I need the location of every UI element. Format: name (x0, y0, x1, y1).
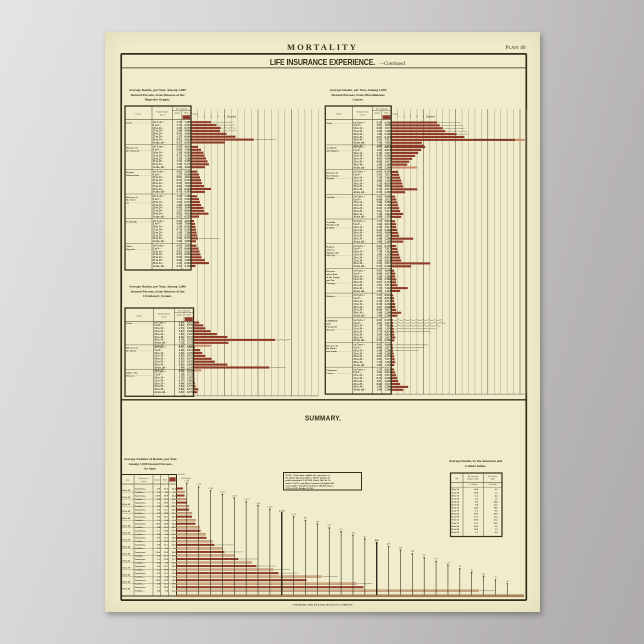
svg-text:60 to 64: 60 to 64 (451, 513, 459, 515)
svg-text:1,193: 1,193 (384, 363, 391, 366)
svg-text:621: 621 (339, 528, 342, 530)
svg-text:25 to 29: 25 to 29 (451, 492, 459, 494)
svg-text:19.9: 19.9 (163, 523, 168, 525)
svg-text:American...: American... (134, 508, 146, 511)
svg-text:9.9: 9.9 (157, 488, 161, 490)
svg-text:5,286: 5,286 (384, 166, 391, 169)
svg-text:5: 5 (223, 115, 225, 118)
svg-text:5.5: 5.5 (494, 528, 498, 530)
svg-text:11.1: 11.1 (164, 509, 169, 511)
svg-text:At ins. all –: At ins. all – (353, 388, 366, 391)
svg-text:70 to 74: 70 to 74 (122, 559, 131, 562)
svg-text:6,286: 6,286 (384, 265, 391, 268)
svg-text:8,379: 8,379 (186, 391, 193, 394)
svg-text:8.19: 8.19 (376, 191, 381, 194)
svg-text:0.0: 0.0 (157, 565, 161, 567)
svg-text:24.4: 24.4 (474, 507, 479, 509)
svg-text:1762 to 1833. Deaths, 25,161.: 1762 to 1833. Deaths, 25,161. (285, 487, 314, 489)
svg-text:1.1: 1.1 (494, 498, 497, 500)
svg-text:2: 2 (203, 115, 205, 118)
svg-text:1,193: 1,193 (384, 289, 391, 292)
svg-text:17.7: 17.7 (171, 530, 176, 532)
svg-text:At ins. all –: At ins. all – (152, 215, 165, 218)
svg-text:Annual: Annual (174, 111, 180, 114)
svg-text:6,555: 6,555 (184, 141, 191, 144)
svg-text:20 to 24: 20 to 24 (451, 489, 459, 491)
svg-text:4: 4 (416, 115, 418, 118)
svg-text:0.73: 0.73 (176, 264, 181, 267)
svg-text:0.0: 0.0 (157, 509, 161, 511)
svg-text:13.3: 13.3 (171, 544, 176, 546)
svg-text:Natural Years: Natural Years (356, 111, 368, 113)
svg-text:10.0: 10.0 (155, 551, 160, 553)
svg-text:19.9: 19.9 (474, 528, 479, 530)
svg-text:(Deaths): (Deaths) (425, 115, 434, 118)
svg-text:233: 233 (422, 554, 426, 556)
svg-text:lived: lived (161, 316, 166, 318)
svg-text:1.1: 1.1 (475, 531, 478, 533)
svg-text:13.3: 13.3 (171, 488, 176, 490)
svg-text:Average Deaths, by the America: Average Deaths, by the American and (448, 459, 501, 463)
svg-text:1.1: 1.1 (475, 510, 478, 512)
svg-text:30 to 34: 30 to 34 (451, 495, 459, 497)
svg-text:30: 30 (494, 577, 497, 579)
svg-text:40 to 44: 40 to 44 (451, 501, 459, 503)
svg-text:1,193: 1,193 (384, 215, 391, 218)
svg-text:and Joints: and Joints (326, 350, 337, 353)
svg-text:At ins. all –: At ins. all – (353, 314, 366, 317)
svg-text:Ratio: Ratio (384, 112, 388, 114)
svg-text:At ins. all –: At ins. all – (152, 166, 165, 169)
svg-text:891: 891 (303, 517, 306, 519)
svg-text:26.6: 26.6 (474, 489, 479, 491)
svg-text:8.37: 8.37 (176, 215, 181, 218)
svg-text:16.6: 16.6 (171, 537, 176, 539)
svg-text:400: 400 (386, 543, 390, 545)
svg-text:19.9: 19.9 (163, 551, 168, 553)
svg-text:Average Deaths, per Year, Amon: Average Deaths, per Year, Among 1,000 (129, 284, 186, 288)
svg-text:1: 1 (396, 115, 398, 118)
svg-text:22.2: 22.2 (493, 519, 497, 521)
svg-text:19.9: 19.9 (474, 513, 479, 515)
svg-text:456: 456 (374, 539, 379, 542)
svg-text:45 to 49: 45 to 49 (451, 504, 459, 506)
svg-text:26.6: 26.6 (474, 525, 479, 527)
svg-text:1.46: 1.46 (376, 314, 381, 317)
svg-text:ces); number of policies inclu: ces); number of policies included, 160,4… (285, 484, 333, 487)
svg-text:At ins. all –: At ins. all – (353, 191, 366, 194)
svg-text:13.3: 13.3 (171, 572, 176, 574)
svg-text:9.9: 9.9 (157, 516, 161, 518)
svg-text:Experience: Experience (138, 477, 147, 479)
svg-text:3.3: 3.3 (475, 498, 479, 500)
svg-text:American...: American... (134, 564, 146, 567)
svg-text:10.0: 10.0 (155, 579, 160, 581)
svg-text:Peritonitis: Peritonitis (126, 220, 137, 223)
svg-text:3: 3 (409, 115, 411, 118)
svg-text:19.9: 19.9 (163, 579, 168, 581)
svg-text:8.19: 8.19 (376, 339, 381, 342)
svg-text:American...: American... (134, 487, 146, 490)
svg-text:At ins. all –: At ins. all – (353, 215, 366, 218)
svg-text:28.8: 28.8 (493, 501, 498, 503)
svg-text:Average Number of Deaths, per: Average Number of Deaths, per Year, (123, 457, 177, 461)
svg-text:(Exper.) Table: (Exper.) Table (467, 477, 478, 480)
svg-text:1.1: 1.1 (157, 530, 161, 532)
svg-text:Causes: Causes (326, 371, 334, 374)
svg-text:SUMMARY.: SUMMARY. (304, 415, 340, 422)
svg-text:85 to 89: 85 to 89 (122, 580, 131, 583)
svg-text:11.1: 11.1 (164, 537, 169, 539)
svg-text:At ins. all –: At ins. all – (152, 190, 165, 193)
svg-text:21.1: 21.1 (493, 504, 497, 506)
svg-text:By Carlisle: By Carlisle (488, 475, 497, 477)
svg-text:At ins. all –: At ins. all – (152, 240, 165, 243)
svg-text:Circulatory System.: Circulatory System. (143, 294, 172, 298)
svg-text:American...: American... (134, 586, 146, 589)
svg-text:0.0: 0.0 (157, 537, 161, 539)
svg-text:Diseases: Diseases (326, 328, 335, 331)
svg-text:MORTALITY: MORTALITY (286, 41, 357, 51)
svg-text:16.6: 16.6 (171, 565, 176, 567)
svg-text:Insured Persons, from Diseases: Insured Persons, from Diseases of the (130, 92, 185, 96)
svg-text:American...: American... (134, 578, 146, 581)
svg-text:COPYRIGHT, 1898, BY RAND, McNA: COPYRIGHT, 1898, BY RAND, McNALLY & COMP… (292, 603, 353, 606)
svg-text:17.7: 17.7 (474, 516, 479, 518)
svg-text:Average Deaths, per Year, Amon: Average Deaths, per Year, Among 1,000 (329, 88, 386, 92)
svg-text:8.37: 8.37 (176, 141, 181, 144)
svg-text:8.8: 8.8 (494, 510, 498, 512)
svg-text:1.1: 1.1 (157, 502, 161, 504)
svg-text:50 to 54: 50 to 54 (451, 507, 459, 509)
svg-text:14.4: 14.4 (171, 495, 176, 497)
svg-text:Natural Years: Natural Years (156, 111, 168, 113)
svg-text:lived: lived (360, 114, 365, 116)
svg-text:29.9: 29.9 (493, 522, 498, 524)
svg-text:5,286: 5,286 (384, 314, 391, 317)
svg-text:1.1: 1.1 (157, 587, 161, 589)
svg-text:Carlisle....: Carlisle.... (134, 590, 144, 592)
svg-text:1: 1 (197, 115, 199, 118)
svg-text:10.0: 10.0 (155, 495, 160, 497)
svg-text:1,240: 1,240 (267, 506, 273, 508)
svg-text:96: 96 (458, 566, 461, 568)
svg-text:At ins. all –: At ins. all – (152, 141, 165, 144)
svg-text:1.1: 1.1 (494, 525, 497, 527)
svg-text:75 to 79: 75 to 79 (451, 522, 459, 524)
svg-text:122: 122 (446, 562, 449, 564)
svg-text:1,666: 1,666 (208, 487, 214, 489)
svg-text:Total: Total (326, 122, 332, 125)
svg-text:Causes.: Causes. (352, 97, 363, 101)
svg-text:17.7: 17.7 (171, 502, 176, 504)
svg-text:5,286: 5,286 (384, 388, 391, 391)
svg-text:90 to 94: 90 to 94 (122, 587, 131, 590)
svg-text:19.9: 19.9 (163, 530, 168, 532)
svg-text:3.00: 3.00 (376, 289, 381, 292)
svg-text:Organs: Organs (326, 177, 334, 180)
svg-text:—Continued.: —Continued. (378, 62, 406, 67)
svg-text:2: 2 (403, 115, 405, 118)
svg-text:19.9: 19.9 (163, 587, 168, 589)
svg-text:16.6: 16.6 (493, 513, 498, 515)
svg-text:4,000: 4,000 (184, 240, 191, 243)
svg-text:by Ages.: by Ages. (144, 466, 156, 470)
svg-text:19.9: 19.9 (163, 558, 168, 560)
svg-text:Suicides: Suicides (326, 196, 335, 199)
svg-text:inclus. 31,274 ; and that of a: inclus. 31,274 ; and that of actuaries (… (285, 481, 334, 484)
svg-text:20 to 24: 20 to 24 (122, 489, 131, 492)
svg-text:4,193: 4,193 (184, 264, 191, 267)
svg-text:6,286: 6,286 (384, 191, 391, 194)
svg-text:American...: American... (134, 571, 146, 574)
svg-text:By American: By American (467, 474, 478, 477)
svg-text:No. of Deaths: No. of Deaths (175, 107, 187, 110)
svg-text:At ins. all –: At ins. all – (154, 391, 167, 394)
svg-text:Annual: Annual (176, 313, 182, 316)
svg-text:9.9: 9.9 (475, 504, 479, 506)
svg-text:Cause: Cause (135, 112, 141, 115)
svg-text:Digestive Organs.: Digestive Organs. (144, 97, 170, 101)
svg-text:etc: etc (126, 201, 130, 204)
svg-text:At ins. all –: At ins. all – (353, 339, 366, 342)
svg-text:American...: American... (134, 522, 146, 525)
svg-text:55 to 59: 55 to 59 (451, 510, 459, 512)
svg-text:lived: lived (160, 114, 165, 116)
svg-text:30 to 34: 30 to 34 (122, 503, 131, 506)
svg-text:the Heart: the Heart (126, 349, 136, 352)
svg-text:85 to 89: 85 to 89 (451, 528, 459, 530)
svg-text:19.9: 19.9 (163, 502, 168, 504)
svg-text:American...: American... (134, 494, 146, 497)
svg-text:Obstruction: Obstruction (126, 174, 140, 177)
svg-text:11.1: 11.1 (164, 572, 169, 574)
svg-text:Age: Age (125, 478, 129, 481)
svg-text:1.46: 1.46 (376, 388, 381, 391)
svg-text:Natural Years: Natural Years (158, 313, 170, 315)
svg-text:(Deaths): (Deaths) (227, 115, 236, 118)
svg-text:19.9: 19.9 (163, 495, 168, 497)
svg-text:760: 760 (315, 521, 319, 523)
svg-text:35 to 39: 35 to 39 (451, 498, 459, 500)
svg-text:4: 4 (217, 115, 219, 118)
svg-text:5,286: 5,286 (384, 240, 391, 243)
svg-text:At ins. all –: At ins. all – (353, 363, 366, 366)
svg-text:1,597: 1,597 (219, 491, 225, 493)
svg-text:19.9: 19.9 (493, 507, 498, 509)
svg-text:LIFE INSURANCE EXPERIENCE.: LIFE INSURANCE EXPERIENCE. (269, 57, 374, 67)
svg-text:70 to 74: 70 to 74 (451, 519, 459, 521)
svg-text:3.00: 3.00 (376, 215, 381, 218)
svg-text:1.1: 1.1 (475, 495, 478, 497)
svg-text:American...: American... (134, 501, 146, 504)
svg-text:5.5: 5.5 (494, 492, 498, 494)
svg-text:60 to 64: 60 to 64 (122, 545, 131, 548)
svg-text:14.4: 14.4 (171, 551, 176, 553)
svg-text:1,728: 1,728 (196, 484, 202, 486)
svg-text:65 to 69: 65 to 69 (122, 552, 131, 555)
svg-text:6,555: 6,555 (184, 215, 191, 218)
svg-text:At ins. all –: At ins. all – (353, 240, 366, 243)
svg-text:12.2: 12.2 (493, 516, 497, 518)
svg-text:SCALE.: SCALE. (178, 473, 186, 476)
svg-text:2.46: 2.46 (176, 166, 181, 169)
svg-text:20.0: 20.0 (474, 519, 479, 521)
svg-text:75 to 79: 75 to 79 (122, 566, 131, 569)
svg-text:No. of Deaths: No. of Deaths (178, 309, 190, 312)
svg-text:Ratio: Ratio (184, 112, 188, 114)
svg-text:At ins. all –: At ins. all – (353, 265, 366, 268)
svg-text:Old Age: Old Age (326, 254, 336, 257)
svg-text:1,015: 1,015 (291, 513, 297, 515)
svg-text:14.4: 14.4 (171, 523, 176, 525)
svg-text:0.73: 0.73 (176, 190, 181, 193)
svg-text:At ins. all –: At ins. all – (353, 166, 366, 169)
svg-text:13.3: 13.3 (171, 516, 176, 518)
svg-text:American...: American... (134, 536, 146, 539)
svg-text:4.4: 4.4 (494, 495, 498, 497)
svg-text:18: 18 (506, 580, 509, 582)
svg-text:45 to 49: 45 to 49 (122, 524, 131, 527)
svg-text:11.1: 11.1 (474, 522, 478, 524)
svg-text:Among 1,000 Insured Persons,: Among 1,000 Insured Persons, (128, 461, 172, 465)
svg-text:the thirty American offices.: the thirty American offices. Whole numbe… (285, 476, 330, 479)
svg-text:40 to 44: 40 to 44 (122, 517, 131, 520)
svg-text:Ratio: Ratio (186, 314, 190, 316)
svg-text:8.8: 8.8 (157, 590, 161, 592)
svg-text:11.1: 11.1 (164, 488, 169, 490)
svg-text:511: 511 (363, 536, 366, 538)
svg-text:48: 48 (482, 573, 485, 575)
svg-text:1.46: 1.46 (376, 240, 381, 243)
svg-text:Av. Deaths: Av. Deaths (488, 483, 497, 486)
svg-text:4.82: 4.82 (178, 391, 183, 394)
svg-text:Cause: Cause (335, 112, 341, 115)
svg-text:14.4: 14.4 (171, 579, 176, 581)
svg-text:1,341: 1,341 (255, 502, 260, 504)
svg-text:Annual: Annual (154, 478, 160, 481)
svg-text:1.1: 1.1 (157, 558, 161, 560)
svg-text:Total: Total (126, 121, 132, 124)
svg-text:4,193: 4,193 (184, 190, 191, 193)
svg-text:Total: Total (162, 479, 166, 481)
svg-text:178: 178 (434, 558, 438, 560)
svg-text:80 to 84: 80 to 84 (451, 525, 459, 527)
svg-text:344: 344 (398, 547, 402, 549)
svg-text:10.0: 10.0 (155, 523, 160, 525)
svg-text:Av. Deaths: Av. Deaths (469, 483, 478, 486)
svg-text:At ins. all –: At ins. all – (152, 264, 165, 267)
svg-text:17.7: 17.7 (171, 587, 176, 589)
svg-text:Insured Persons, from Diseases: Insured Persons, from Diseases of the (130, 289, 185, 293)
svg-text:289: 289 (410, 551, 413, 553)
svg-text:Table: Table (490, 478, 495, 480)
svg-text:PLATE 40: PLATE 40 (505, 45, 525, 51)
svg-text:and Injuries: and Injuries (326, 149, 339, 152)
svg-text:65 to 69: 65 to 69 (451, 516, 459, 518)
svg-text:11.1: 11.1 (164, 544, 169, 546)
svg-text:3: 3 (210, 115, 212, 118)
svg-text:1,782: 1,782 (184, 480, 189, 482)
svg-text:5: 5 (422, 115, 424, 118)
svg-text:4,000: 4,000 (184, 166, 191, 169)
svg-text:1.46: 1.46 (376, 166, 381, 169)
svg-text:70: 70 (470, 569, 473, 571)
svg-text:19.9: 19.9 (474, 492, 479, 494)
svg-text:Average Deaths, per Year, Amon: Average Deaths, per Year, Among 1,000 (129, 88, 186, 92)
svg-text:No. of Deaths: No. of Deaths (376, 107, 388, 110)
svg-text:80 to 84: 80 to 84 (122, 573, 131, 576)
svg-text:Annual: Annual (374, 111, 380, 114)
svg-text:At ins. all –: At ins. all – (353, 289, 366, 292)
svg-text:Passages: Passages (326, 281, 335, 284)
svg-text:9.9: 9.9 (157, 572, 161, 574)
svg-text:American...: American... (134, 543, 146, 546)
svg-text:6,286: 6,286 (384, 339, 391, 342)
svg-text:American...: American... (134, 515, 146, 518)
svg-text:Cause: Cause (136, 314, 142, 317)
svg-text:Diseases: Diseases (126, 374, 135, 377)
svg-text:Digestive: Digestive (126, 248, 137, 251)
svg-text:35 to 39: 35 to 39 (122, 510, 131, 513)
svg-text:the Stomach: the Stomach (126, 149, 140, 152)
svg-text:1.1: 1.1 (494, 489, 497, 491)
svg-text:90 to 94: 90 to 94 (451, 531, 459, 533)
svg-text:16.6: 16.6 (171, 509, 176, 511)
svg-text:American...: American... (134, 529, 146, 532)
svg-text:Insured Persons, from Miscella: Insured Persons, from Miscellaneous (331, 92, 385, 96)
svg-text:American...: American... (134, 557, 146, 560)
svg-text:Age: Age (454, 477, 458, 480)
svg-text:25 to 29: 25 to 29 (122, 496, 131, 499)
svg-text:American...: American... (134, 550, 146, 553)
svg-text:6.6: 6.6 (165, 590, 169, 592)
svg-text:Diabetes: Diabetes (326, 294, 335, 297)
svg-text:1,520: 1,520 (231, 495, 237, 497)
svg-text:566: 566 (351, 532, 355, 534)
svg-text:11.1: 11.1 (164, 516, 169, 518)
svg-text:11.1: 11.1 (164, 565, 169, 567)
svg-text:1,131: 1,131 (278, 509, 284, 512)
svg-text:Total: Total (126, 322, 132, 325)
svg-text:Years: Years (141, 480, 146, 482)
svg-text:0.0: 0.0 (475, 501, 479, 503)
svg-text:1,434: 1,434 (243, 499, 249, 501)
svg-text:3.00: 3.00 (376, 363, 381, 366)
svg-text:50 to 54: 50 to 54 (122, 531, 131, 534)
svg-text:Debility: Debility (326, 226, 335, 229)
svg-text:55 to 59: 55 to 59 (122, 538, 131, 541)
svg-text:17.7: 17.7 (171, 558, 176, 560)
svg-text:2.46: 2.46 (176, 240, 181, 243)
svg-text:4.4: 4.4 (494, 531, 498, 533)
svg-text:9.9: 9.9 (157, 544, 161, 546)
svg-text:676: 676 (327, 525, 331, 527)
svg-text:Carlisle Tables.: Carlisle Tables. (464, 463, 486, 467)
svg-text:12.2: 12.2 (171, 590, 176, 592)
svg-text:8.19: 8.19 (376, 265, 381, 268)
